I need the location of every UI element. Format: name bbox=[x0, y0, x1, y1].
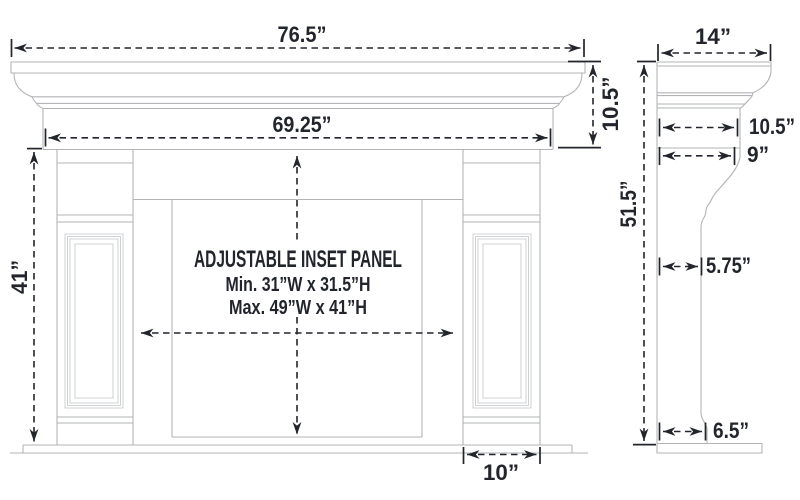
dim-front-overall-width: 76.5” bbox=[12, 22, 585, 57]
front-leg-width-label: 10” bbox=[483, 460, 519, 485]
side-leg-depth-label: 5.75” bbox=[706, 253, 751, 278]
front-shelf bbox=[11, 62, 585, 73]
dim-front-header-width: 69.25” bbox=[46, 112, 551, 147]
dim-front-leg-height: 41” bbox=[7, 149, 42, 442]
dim-front-header-height: 10.5” bbox=[558, 62, 623, 148]
dim-side-header-depth: 10.5” bbox=[660, 114, 796, 139]
side-shelf-depth-label: 14” bbox=[695, 24, 731, 49]
front-base bbox=[10, 445, 588, 453]
dim-side-shelf-depth: 14” bbox=[658, 24, 771, 61]
front-header-width-label: 69.25” bbox=[273, 112, 332, 137]
front-leg-height-label: 41” bbox=[7, 260, 32, 294]
front-overall-width-label: 76.5” bbox=[278, 22, 327, 47]
front-left-leg-panel bbox=[65, 234, 123, 408]
side-base bbox=[657, 444, 762, 454]
side-overall-height-label: 51.5” bbox=[616, 181, 641, 228]
side-crown-base-depth-label: 9” bbox=[747, 142, 769, 167]
diagram-canvas: 76.5” 69.25” 10.5” 41” 10” ADJUSTABLE IN… bbox=[0, 0, 800, 500]
inset-panel-title: ADJUSTABLE INSET PANEL bbox=[194, 246, 402, 273]
dim-side-leg-depth: 5.75” bbox=[660, 253, 752, 278]
side-base-depth-label: 6.5” bbox=[713, 418, 749, 443]
inset-panel-max: Max. 49”W x 41”H bbox=[229, 297, 367, 319]
side-header-depth-label: 10.5” bbox=[749, 114, 795, 139]
front-crown-molding bbox=[14, 73, 582, 109]
front-right-leg-panel bbox=[473, 234, 531, 408]
front-left-leg bbox=[57, 150, 133, 446]
front-header-height-label: 10.5” bbox=[598, 77, 623, 132]
side-crown-molding bbox=[657, 72, 771, 108]
inset-panel-min: Min. 31”W x 31.5”H bbox=[226, 274, 371, 296]
mantel-dimension-diagram: 76.5” 69.25” 10.5” 41” 10” ADJUSTABLE IN… bbox=[0, 0, 800, 500]
dim-side-crown-base-depth: 9” bbox=[660, 142, 770, 167]
adjustable-inset-panel-annotation: ADJUSTABLE INSET PANEL Min. 31”W x 31.5”… bbox=[141, 156, 453, 435]
dim-ticks bbox=[558, 62, 601, 148]
